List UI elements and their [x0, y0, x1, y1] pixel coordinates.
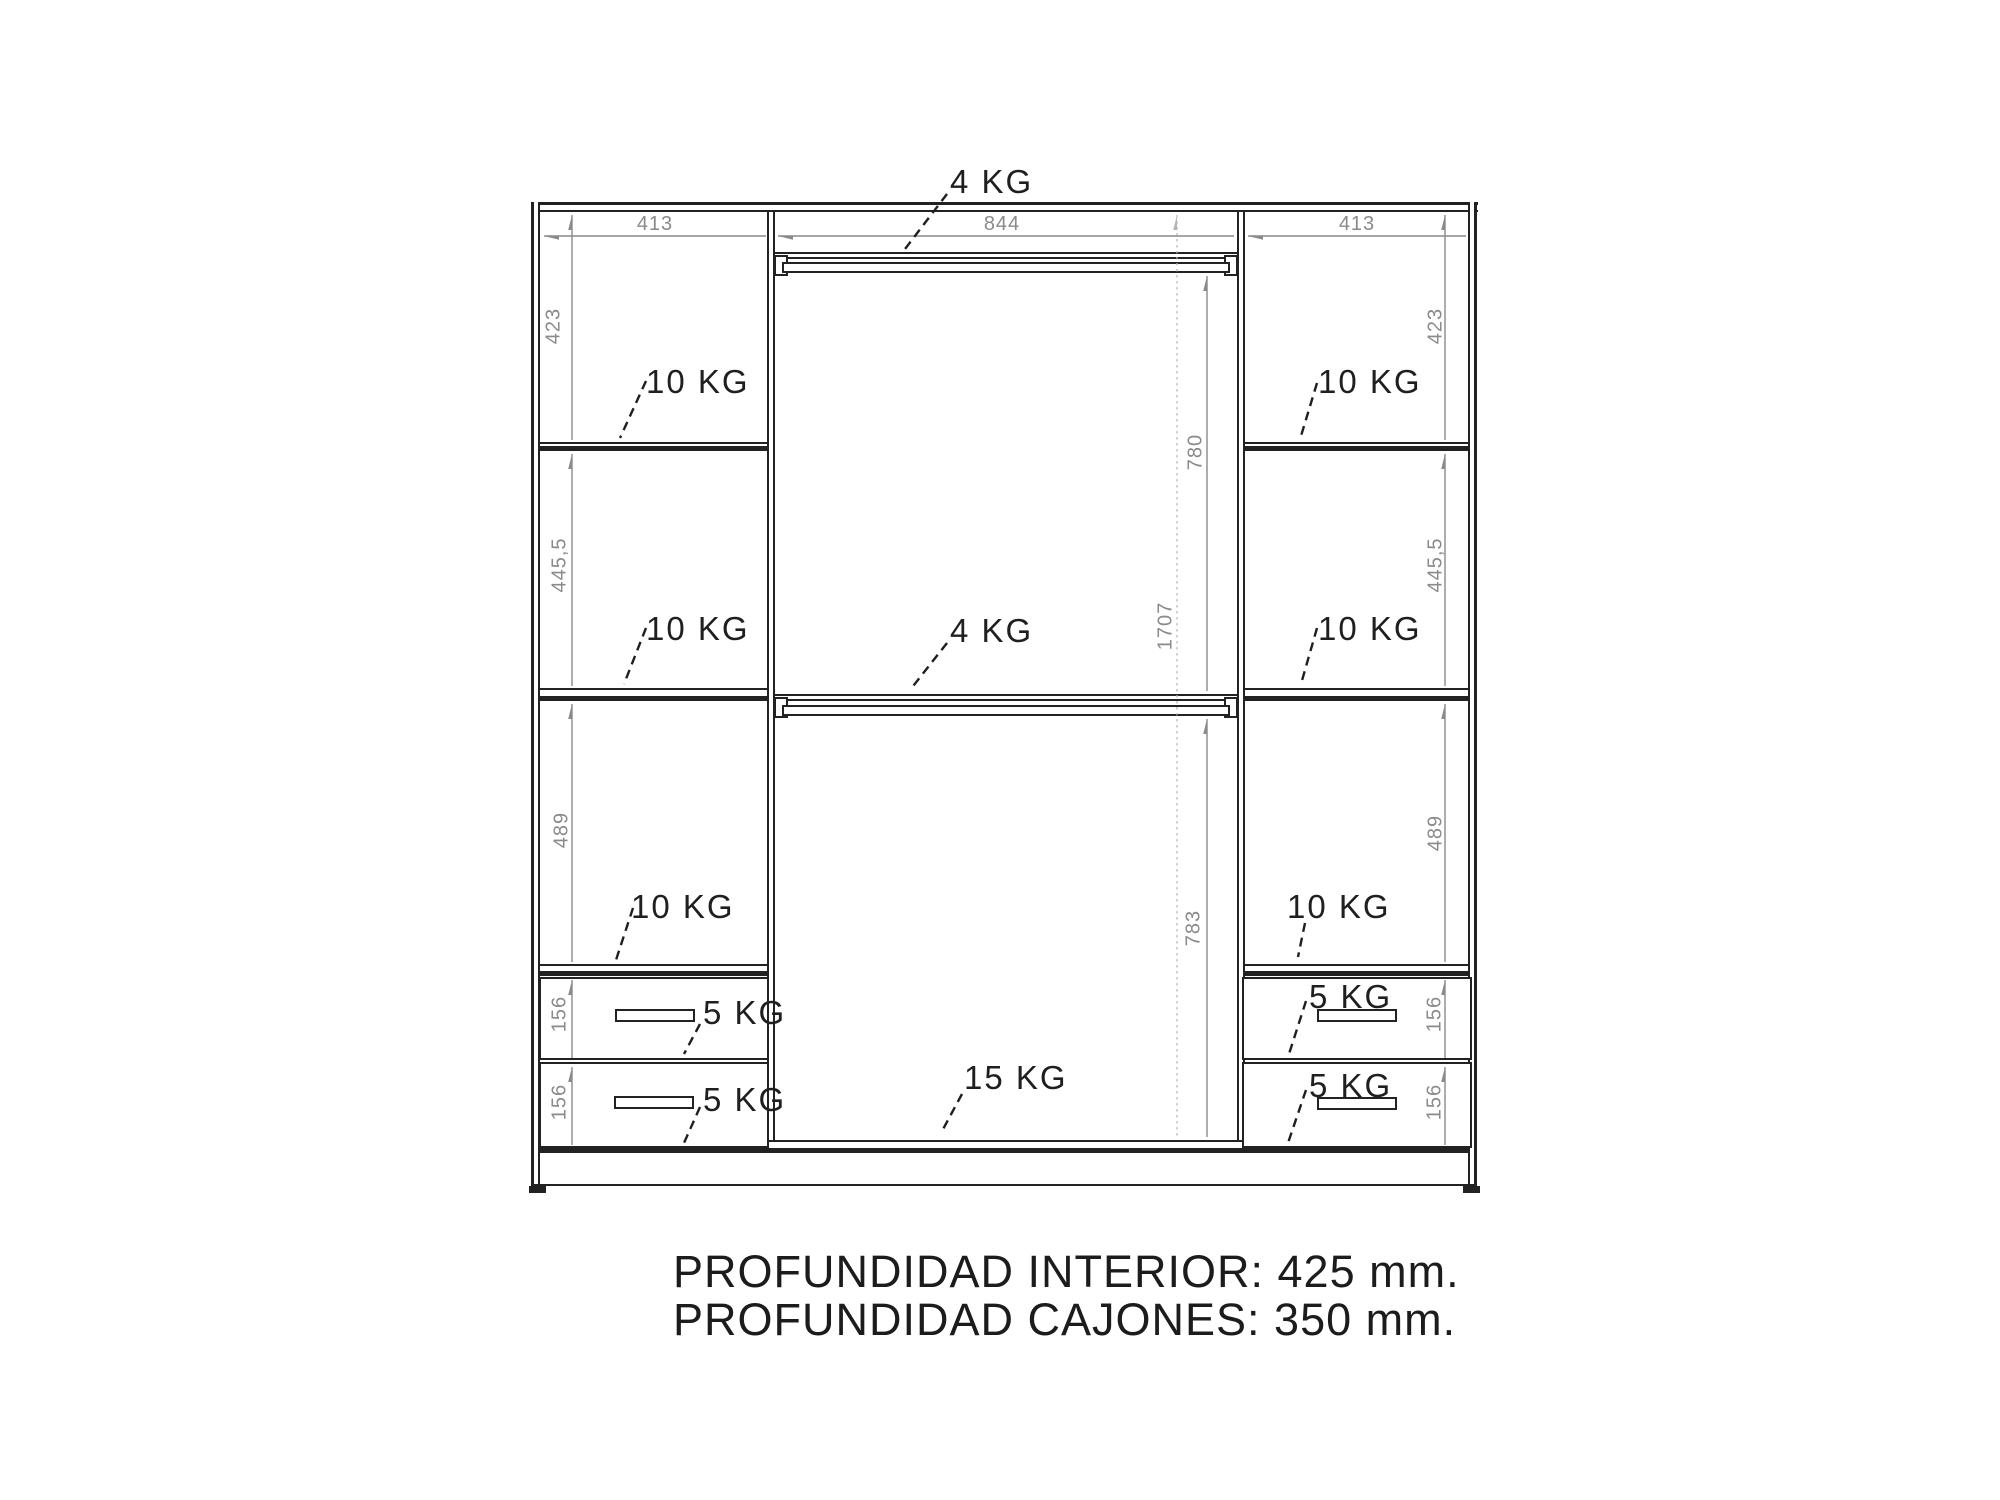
depth-note-interior: PROFUNDIDAD INTERIOR: 425 mm. — [673, 1246, 1460, 1298]
dim-middle-1707: 1707 — [1155, 602, 1178, 651]
load-base-panel: 15 KG — [964, 1059, 1068, 1097]
load-left-shelf-3: 10 KG — [631, 888, 735, 926]
load-right-shelf-2: 10 KG — [1318, 610, 1422, 648]
dim-left-156-b: 156 — [549, 1084, 572, 1120]
dim-left-width: 413 — [555, 213, 755, 236]
load-right-shelf-1: 10 KG — [1318, 363, 1422, 401]
dim-right-156-b: 156 — [1424, 1084, 1447, 1120]
load-left-drawer-2: 5 KG — [703, 1081, 786, 1119]
load-top-rail: 4 KG — [950, 163, 1033, 201]
dim-left-156-a: 156 — [549, 996, 572, 1032]
dim-right-width: 413 — [1257, 213, 1457, 236]
dim-left-423: 423 — [543, 308, 566, 344]
dim-right-156-a: 156 — [1424, 996, 1447, 1032]
dim-right-423: 423 — [1425, 308, 1448, 344]
dim-left-489: 489 — [551, 812, 574, 848]
depth-note-drawers: PROFUNDIDAD CAJONES: 350 mm. — [673, 1294, 1456, 1346]
dim-right-489: 489 — [1425, 815, 1448, 851]
dim-middle-780: 780 — [1185, 434, 1208, 470]
load-left-shelf-1: 10 KG — [646, 363, 750, 401]
dim-right-445-5: 445,5 — [1425, 537, 1448, 592]
dim-middle-783: 783 — [1183, 910, 1206, 946]
middle-height-dimension-lines — [1177, 215, 1207, 1137]
load-right-drawer-2: 5 KG — [1309, 1067, 1392, 1105]
load-right-drawer-1: 5 KG — [1309, 978, 1392, 1016]
load-left-drawer-1: 5 KG — [703, 994, 786, 1032]
dim-left-445-5: 445,5 — [549, 537, 572, 592]
load-right-shelf-3: 10 KG — [1287, 888, 1391, 926]
load-left-shelf-2: 10 KG — [646, 610, 750, 648]
wardrobe-technical-drawing: 413 844 413 423 445,5 489 156 156 780 17… — [0, 0, 2000, 1500]
load-middle-rail: 4 KG — [950, 612, 1033, 650]
dim-middle-width: 844 — [902, 213, 1102, 236]
